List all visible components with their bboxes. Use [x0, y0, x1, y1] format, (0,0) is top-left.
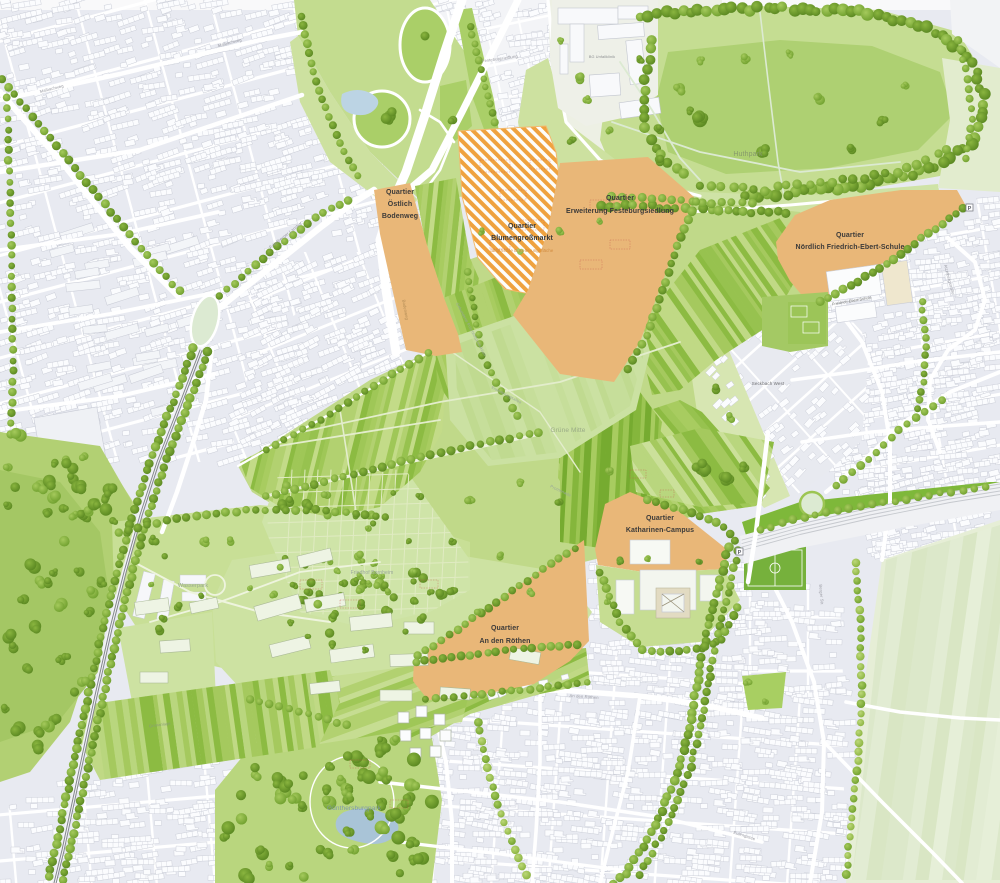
svg-text:Quartier: Quartier	[836, 232, 864, 239]
svg-text:Erweiterung Festeburgsiedlung: Erweiterung Festeburgsiedlung	[566, 208, 674, 215]
svg-text:Katharinen-Campus: Katharinen-Campus	[626, 527, 694, 534]
svg-text:BG Unfallklinik: BG Unfallklinik	[589, 55, 615, 59]
svg-text:P: P	[968, 206, 972, 212]
svg-text:Quartier: Quartier	[491, 625, 519, 632]
svg-text:Seckbach West: Seckbach West	[752, 381, 785, 386]
svg-text:Quartier: Quartier	[508, 223, 536, 230]
svg-text:Blumengroßmarkt: Blumengroßmarkt	[491, 235, 553, 242]
svg-text:Günthersburgpark: Günthersburgpark	[327, 805, 382, 812]
svg-text:Nördlich Friedrich-Ebert-Schul: Nördlich Friedrich-Ebert-Schule	[796, 244, 905, 251]
svg-text:Wasserpark: Wasserpark	[178, 583, 208, 589]
svg-text:Quartier: Quartier	[606, 195, 634, 202]
svg-text:An den Röthen: An den Röthen	[479, 638, 530, 645]
svg-text:Östlich: Östlich	[388, 199, 412, 208]
svg-text:langfristige Erweiterungsfläch: langfristige Erweiterungsfläche	[491, 248, 554, 253]
svg-text:P: P	[738, 550, 742, 556]
svg-text:Bodenweg: Bodenweg	[382, 213, 418, 220]
svg-text:Quartier: Quartier	[386, 189, 414, 196]
svg-text:Huthpark: Huthpark	[733, 151, 763, 158]
svg-text:Quartier: Quartier	[646, 515, 674, 522]
svg-text:Friedhof Bornheim: Friedhof Bornheim	[351, 570, 394, 576]
svg-text:Grüne Mitte: Grüne Mitte	[550, 427, 585, 434]
